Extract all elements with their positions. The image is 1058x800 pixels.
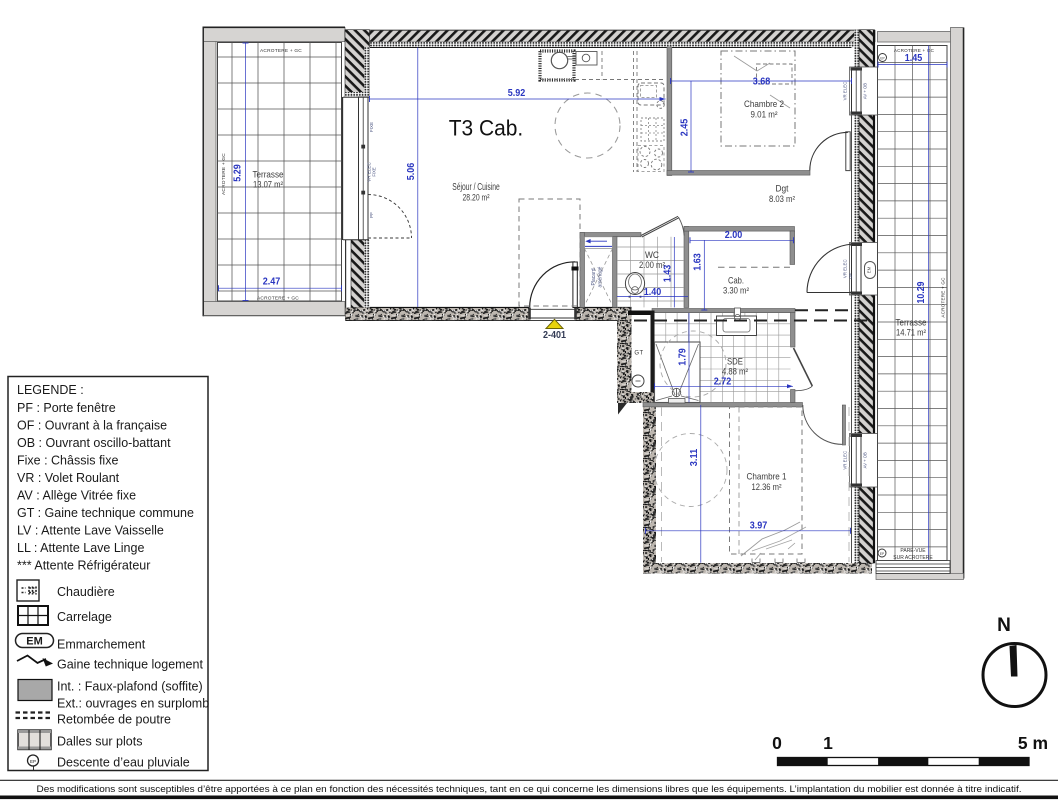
svg-text:3.30 m²: 3.30 m² xyxy=(723,286,749,296)
svg-text:ACROTERE + GC: ACROTERE + GC xyxy=(221,153,227,195)
svg-text:1.40: 1.40 xyxy=(644,287,662,298)
svg-text:VR ELEC: VR ELEC xyxy=(843,259,848,278)
svg-text:2.00: 2.00 xyxy=(725,230,743,241)
svg-text:EM: EM xyxy=(866,266,871,273)
svg-text:Séjour / Cuisine: Séjour / Cuisine xyxy=(452,182,500,193)
svg-text:9.01 m²: 9.01 m² xyxy=(751,110,778,120)
svg-text:T3 Cab.: T3 Cab. xyxy=(449,116,524,141)
svg-text:2.72: 2.72 xyxy=(714,377,732,388)
svg-text:8.03 m²: 8.03 m² xyxy=(769,194,795,204)
svg-text:N: N xyxy=(997,615,1011,636)
svg-text:Chambre 2: Chambre 2 xyxy=(744,99,784,110)
svg-text:10.29: 10.29 xyxy=(916,281,927,303)
svg-text:Chambre 1: Chambre 1 xyxy=(747,472,787,483)
svg-text:2.00 m²: 2.00 m² xyxy=(639,260,665,270)
svg-text:Gaine technique logement: Gaine technique logement xyxy=(57,658,203,672)
svg-text:EP: EP xyxy=(30,759,36,764)
svg-text:1.79: 1.79 xyxy=(677,348,688,366)
svg-text:AV : Allège Vitrée fixe: AV : Allège Vitrée fixe xyxy=(17,489,136,503)
svg-text:LEGENDE :: LEGENDE : xyxy=(17,383,84,397)
svg-text:2.47: 2.47 xyxy=(263,277,281,288)
svg-text:EP: EP xyxy=(880,56,884,60)
svg-text:Placard: Placard xyxy=(591,268,597,285)
svg-text:PARE-VUE: PARE-VUE xyxy=(900,548,926,554)
svg-text:AV + OB: AV + OB xyxy=(863,83,868,99)
svg-text:2-401: 2-401 xyxy=(543,329,566,341)
svg-text:Des modifications sont suscept: Des modifications sont susceptibles d’êt… xyxy=(37,784,1022,794)
svg-text:3.97: 3.97 xyxy=(750,521,768,532)
svg-text:Chaudière: Chaudière xyxy=(57,585,115,599)
svg-text:ACROTERE + GC: ACROTERE + GC xyxy=(260,48,302,54)
svg-text:4.88 m²: 4.88 m² xyxy=(722,367,748,377)
svg-text:Descente d’eau pluviale: Descente d’eau pluviale xyxy=(57,756,190,770)
svg-text:0: 0 xyxy=(772,733,782,753)
svg-text:Dgt: Dgt xyxy=(776,184,789,195)
svg-text:VR : Volet Roulant: VR : Volet Roulant xyxy=(17,471,120,485)
svg-text:PF: PF xyxy=(369,212,374,218)
svg-text:3.11: 3.11 xyxy=(689,448,700,466)
svg-text:OF: OF xyxy=(848,273,853,279)
svg-text:1.45: 1.45 xyxy=(905,53,923,64)
svg-text:5 m: 5 m xyxy=(1018,733,1048,753)
svg-text:Retombée de poutre: Retombée de poutre xyxy=(57,713,171,727)
svg-text:FIXE: FIXE xyxy=(372,167,377,177)
svg-text:5.06: 5.06 xyxy=(406,162,417,180)
svg-text:Dalles sur plots: Dalles sur plots xyxy=(57,735,142,749)
svg-text:ACROTERE + GC: ACROTERE + GC xyxy=(941,277,946,318)
svg-text:1.43: 1.43 xyxy=(663,264,674,282)
svg-text:SUR ACROTERE: SUR ACROTERE xyxy=(893,555,933,561)
svg-text:EP: EP xyxy=(880,552,884,556)
svg-text:3.68: 3.68 xyxy=(753,77,771,88)
svg-text:1: 1 xyxy=(823,733,833,753)
svg-text:Int. : Faux-plafond (soffite): Int. : Faux-plafond (soffite) xyxy=(57,680,203,694)
svg-text:1.63: 1.63 xyxy=(693,253,704,271)
svg-text:GT : Gaine technique commune: GT : Gaine technique commune xyxy=(17,506,194,520)
svg-text:ACROTERE + GC: ACROTERE + GC xyxy=(257,296,299,302)
svg-text:Ext.: ouvrages en surplomb: Ext.: ouvrages en surplomb xyxy=(57,697,209,711)
svg-text:VR ELEC: VR ELEC xyxy=(843,451,848,470)
svg-text:LL : Attente Lave Linge: LL : Attente Lave Linge xyxy=(17,541,144,555)
svg-text:Fixe : Châssis fixe: Fixe : Châssis fixe xyxy=(17,454,118,468)
svg-text:AV + OB: AV + OB xyxy=(863,452,868,468)
svg-text:2.45: 2.45 xyxy=(679,118,690,136)
svg-text:OB : Ouvrant oscillo-battant: OB : Ouvrant oscillo-battant xyxy=(17,436,171,450)
svg-text:FIXE: FIXE xyxy=(369,122,374,132)
svg-text:5.29: 5.29 xyxy=(233,164,244,182)
svg-text:OF : Ouvrant à la française: OF : Ouvrant à la française xyxy=(17,419,167,433)
svg-text:28.20 m²: 28.20 m² xyxy=(463,193,490,204)
svg-text:LV : Attente Lave Vaisselle: LV : Attente Lave Vaisselle xyxy=(17,524,164,538)
svg-text:Carrelage: Carrelage xyxy=(57,610,112,624)
svg-text:5.92: 5.92 xyxy=(508,88,526,99)
svg-text:12.36 m²: 12.36 m² xyxy=(752,482,782,492)
svg-text:*** Attente Réfrigérateur: *** Attente Réfrigérateur xyxy=(17,559,150,573)
svg-text:14.71 m²: 14.71 m² xyxy=(896,328,926,338)
svg-text:Emmarchement: Emmarchement xyxy=(57,638,146,652)
svg-text:VR ELEC: VR ELEC xyxy=(843,82,848,101)
svg-text:13.07 m²: 13.07 m² xyxy=(253,180,283,190)
svg-text:aménagé: aménagé xyxy=(598,266,604,287)
svg-text:PF : Porte fenêtre: PF : Porte fenêtre xyxy=(17,401,116,415)
svg-text:EM: EM xyxy=(26,636,43,648)
svg-text:GT: GT xyxy=(634,351,643,357)
